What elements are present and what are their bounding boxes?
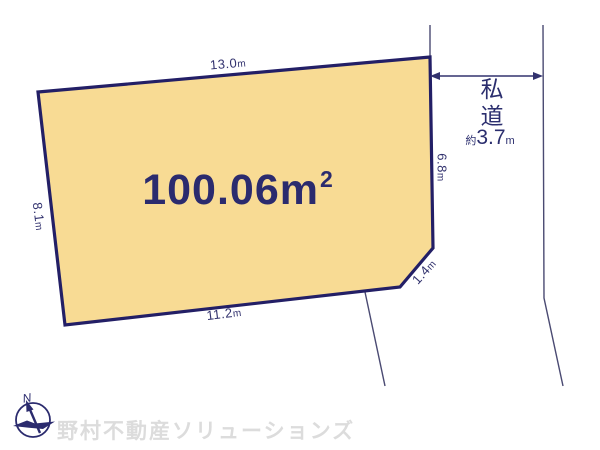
road-width-unit: m	[506, 135, 515, 147]
private-road-width-label: 約3.7m	[454, 126, 526, 150]
road-width-prefix: 約	[465, 135, 476, 147]
area-value: 100.06	[142, 166, 280, 214]
area-exponent: 2	[320, 166, 334, 192]
road-width-arrowhead-right	[533, 72, 543, 80]
compass-north-label: N	[22, 390, 33, 405]
dimension-value: 13.0	[209, 55, 238, 72]
private-road-label: 私道	[473, 77, 507, 133]
dimension-unit: m	[237, 58, 247, 70]
dimension-unit: m	[232, 308, 242, 320]
area-unit: m	[280, 166, 319, 214]
parcel-area-label: 100.06m2	[130, 166, 345, 215]
road-right-boundary-line	[543, 25, 563, 386]
dimension-unit: m	[32, 221, 44, 231]
diagram-canvas: N	[0, 0, 600, 450]
dimension-value: 6.8	[435, 153, 450, 173]
dimension-label-right: 6.8m	[435, 143, 450, 193]
dimension-value: 11.2	[206, 305, 234, 323]
dimension-value: 8.1	[30, 201, 47, 222]
road-width-value: 3.7	[476, 126, 505, 149]
land-plot-diagram: N 100.06m2 13.0m 8.1m 11.2m 6.8m 1.4m 私道…	[0, 0, 600, 450]
dimension-unit: m	[435, 173, 446, 182]
company-watermark: 野村不動産ソリューションズ	[57, 415, 355, 445]
road-left-boundary-lower-line	[365, 292, 385, 386]
compass-circle	[16, 403, 50, 437]
north-compass-icon: N	[13, 390, 55, 437]
